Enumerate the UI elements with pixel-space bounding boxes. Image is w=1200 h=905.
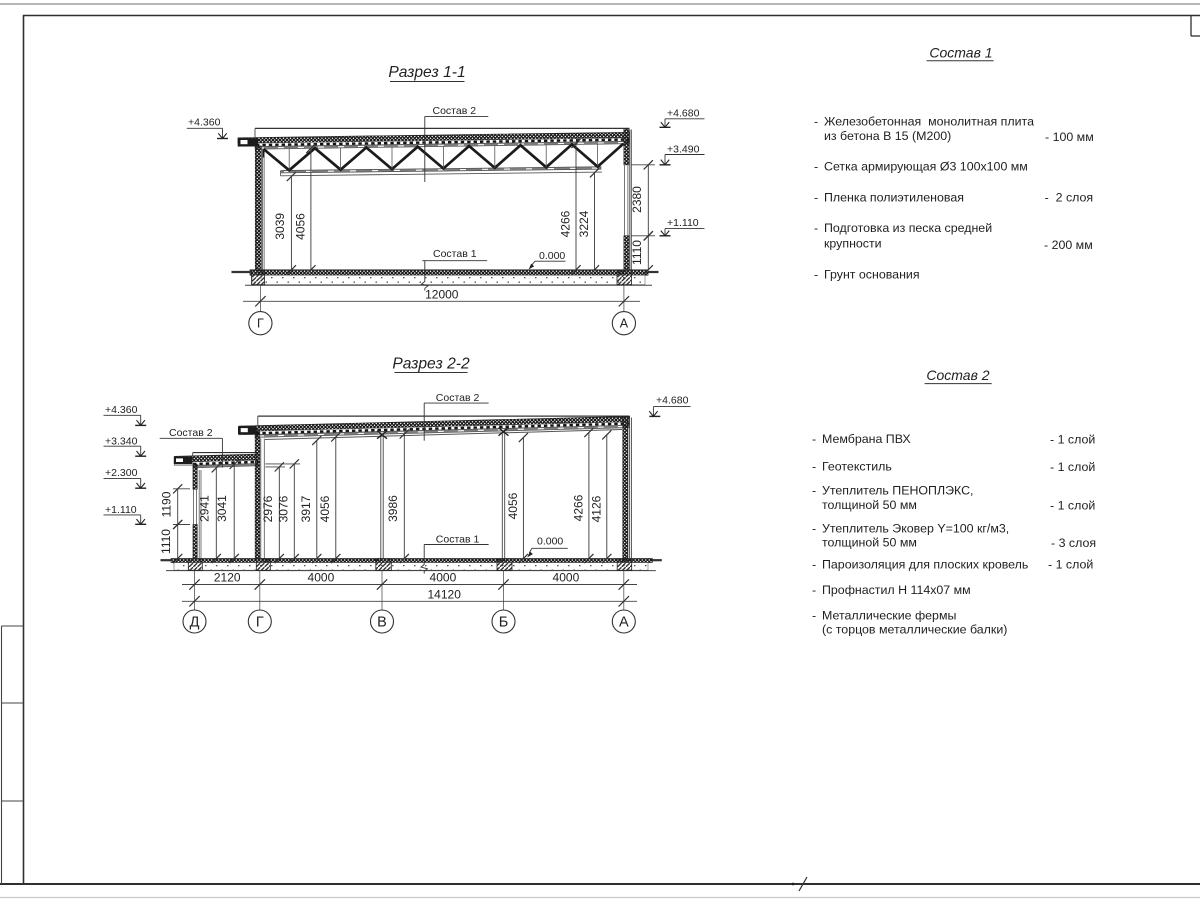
- svg-text:3917: 3917: [299, 495, 313, 522]
- svg-text:- 1 слой: - 1 слой: [1050, 460, 1095, 474]
- svg-text:-: -: [812, 557, 816, 571]
- svg-text:Мембрана ПВХ: Мембрана ПВХ: [822, 432, 911, 446]
- svg-text:(с торцов металлические балки): (с торцов металлические балки): [822, 623, 1007, 637]
- svg-text:2976: 2976: [261, 495, 275, 522]
- svg-text:- 100 мм: - 100 мм: [1045, 130, 1094, 144]
- svg-text:4126: 4126: [589, 495, 603, 522]
- svg-text:3076: 3076: [276, 495, 290, 522]
- svg-text:-: -: [814, 190, 818, 204]
- svg-text:2380: 2380: [630, 186, 644, 213]
- svg-text:+2.300: +2.300: [105, 467, 138, 479]
- svg-text:3986: 3986: [386, 495, 400, 522]
- svg-text:А: А: [620, 317, 629, 331]
- svg-text:Состав 2: Состав 2: [926, 367, 989, 383]
- svg-text:- 3 слоя: - 3 слоя: [1051, 536, 1096, 550]
- svg-text:Геотекстиль: Геотекстиль: [822, 460, 892, 474]
- svg-text:Подготовка из песка средней: Подготовка из песка средней: [824, 221, 992, 235]
- svg-text:толщиной 50 мм: толщиной 50 мм: [822, 536, 917, 550]
- svg-text:4266: 4266: [571, 494, 585, 521]
- svg-text:-: -: [814, 221, 818, 235]
- svg-text:из бетона В 15 (М200): из бетона В 15 (М200): [824, 129, 951, 143]
- svg-text:Состав 1: Состав 1: [436, 534, 480, 546]
- svg-text:4056: 4056: [506, 492, 520, 519]
- svg-text:-: -: [814, 267, 818, 281]
- svg-text:Состав 2: Состав 2: [436, 392, 480, 404]
- svg-text:+3.490: +3.490: [667, 143, 700, 155]
- svg-text:Грунт основания: Грунт основания: [824, 267, 920, 281]
- svg-text:-: -: [814, 115, 818, 129]
- svg-text:3224: 3224: [577, 210, 591, 237]
- svg-text:Состав 2: Состав 2: [433, 105, 477, 117]
- svg-text:-: -: [812, 521, 816, 535]
- svg-text:+4.360: +4.360: [105, 404, 138, 416]
- svg-text:4000: 4000: [553, 571, 580, 585]
- svg-text:Пароизоляция для плоских крове: Пароизоляция для плоских кровель: [822, 557, 1028, 571]
- svg-text:- 200 мм: - 200 мм: [1044, 238, 1093, 252]
- svg-text:- 1 слой: - 1 слой: [1050, 498, 1095, 512]
- svg-text:1110: 1110: [630, 240, 644, 265]
- svg-text:А: А: [619, 615, 629, 631]
- svg-text:+4.680: +4.680: [656, 395, 689, 407]
- svg-text:0.000: 0.000: [537, 536, 563, 548]
- svg-text:2941: 2941: [197, 495, 211, 522]
- svg-text:4000: 4000: [430, 571, 457, 585]
- svg-text:+4.360: +4.360: [188, 117, 221, 129]
- svg-text:+3.340: +3.340: [105, 435, 138, 447]
- svg-text:В: В: [377, 615, 387, 631]
- svg-text:Г: Г: [256, 615, 264, 631]
- svg-text:4266: 4266: [559, 210, 573, 237]
- svg-text:1190: 1190: [159, 491, 173, 517]
- svg-text:+1.110: +1.110: [667, 217, 699, 229]
- svg-text:Утеплитель Эковер Y=100 кг/м3,: Утеплитель Эковер Y=100 кг/м3,: [822, 521, 1009, 535]
- svg-text:-: -: [812, 432, 816, 446]
- svg-text:0.000: 0.000: [539, 250, 565, 262]
- svg-text:Разрез 2-2: Разрез 2-2: [392, 356, 470, 373]
- svg-text:Профнастил Н 114х07 мм: Профнастил Н 114х07 мм: [822, 583, 971, 597]
- svg-text:крупности: крупности: [824, 237, 882, 251]
- svg-text:+1.110: +1.110: [105, 504, 137, 516]
- svg-text:Состав 2: Состав 2: [169, 427, 213, 439]
- svg-text:- 1 слой: - 1 слой: [1050, 432, 1095, 446]
- svg-text:-: -: [814, 160, 818, 174]
- svg-text:Утеплитель ПЕНОПЛЭКС,: Утеплитель ПЕНОПЛЭКС,: [822, 484, 973, 498]
- svg-text:4056: 4056: [294, 213, 308, 240]
- svg-text:Железобетонная монолитная пли: Железобетонная монолитная плита: [824, 115, 1034, 129]
- svg-text:- 2 слоя: - 2 слоя: [1045, 190, 1094, 204]
- svg-text:3041: 3041: [215, 495, 229, 522]
- svg-text:Г: Г: [257, 317, 264, 331]
- svg-text:-: -: [812, 583, 816, 597]
- svg-text:Разрез 1-1: Разрез 1-1: [388, 64, 465, 81]
- svg-text:- 1 слой: - 1 слой: [1048, 558, 1093, 572]
- svg-text:Состав 1: Состав 1: [929, 45, 992, 61]
- svg-text:-: -: [812, 608, 816, 622]
- svg-text:Б: Б: [499, 615, 509, 631]
- svg-text:3039: 3039: [273, 213, 287, 240]
- svg-text:Д: Д: [190, 615, 200, 631]
- svg-text:Состав 1: Состав 1: [433, 248, 477, 260]
- svg-text:12000: 12000: [425, 288, 459, 302]
- svg-text:+4.680: +4.680: [667, 107, 700, 119]
- svg-text:Металлические фермы: Металлические фермы: [822, 608, 956, 622]
- svg-text:толщиной 50 мм: толщиной 50 мм: [822, 498, 917, 512]
- svg-text:Пленка полиэтиленовая: Пленка полиэтиленовая: [824, 190, 964, 204]
- svg-text:14120: 14120: [428, 588, 462, 602]
- svg-text:Сетка армирующая Ø3 100х100 мм: Сетка армирующая Ø3 100х100 мм: [824, 160, 1028, 174]
- svg-text:4000: 4000: [308, 571, 335, 585]
- svg-text:-: -: [812, 460, 816, 474]
- svg-text:1110: 1110: [159, 529, 173, 554]
- svg-text:-: -: [812, 484, 816, 498]
- svg-text:4056: 4056: [318, 495, 332, 522]
- svg-text:2120: 2120: [214, 571, 241, 585]
